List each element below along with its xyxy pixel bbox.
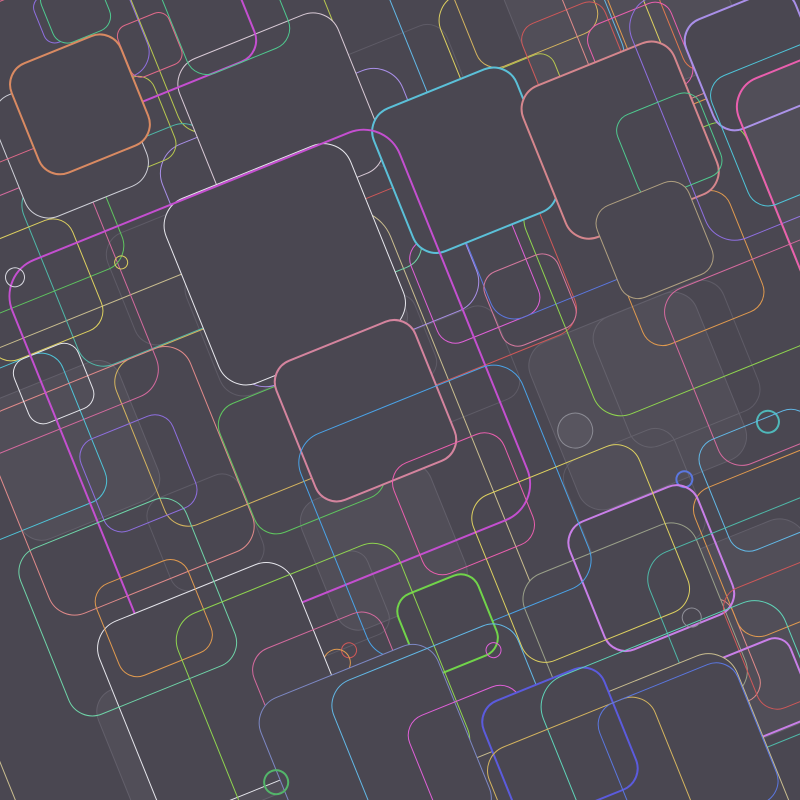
art-grid: [0, 0, 800, 800]
art-canvas: [0, 0, 800, 800]
